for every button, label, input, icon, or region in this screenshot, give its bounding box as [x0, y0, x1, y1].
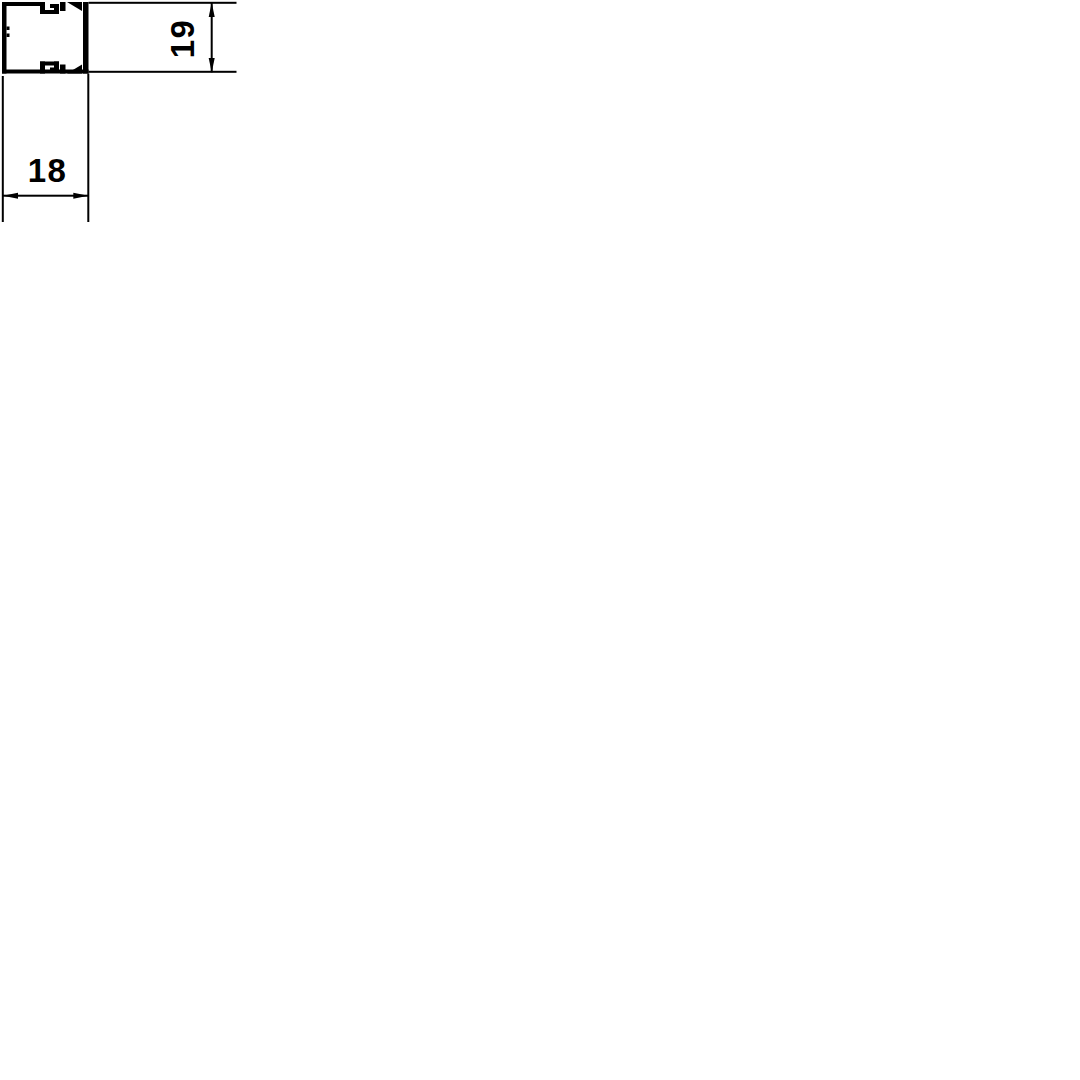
- height-extension-line-bottom: [89, 71, 237, 73]
- trunking-cover-profile: [67, 2, 89, 74]
- arrow-right-icon: [73, 193, 88, 199]
- cover-bottom-clip-wedge: [67, 65, 82, 74]
- arrow-down-icon: [209, 58, 215, 73]
- height-dimension-label: 19: [164, 19, 201, 59]
- cover-top-clip-wedge: [67, 2, 82, 11]
- cover-face: [83, 2, 89, 74]
- base-left-wall: [2, 2, 7, 74]
- arrow-left-icon: [3, 193, 18, 199]
- technical-drawing: 19 18: [0, 0, 260, 240]
- height-dimension: 19: [89, 2, 237, 73]
- width-dimension-label: 18: [28, 152, 68, 189]
- width-extension-line-right: [87, 74, 89, 223]
- drawing-ink: 19 18: [2, 2, 237, 222]
- left-wall-rib: [7, 34, 10, 38]
- trunking-cross-section-svg: 19 18: [0, 0, 260, 240]
- bottom-side-edge: [60, 65, 66, 74]
- trunking-base-profile: [2, 2, 89, 74]
- top-side-edge: [60, 2, 66, 11]
- height-extension-line-top: [89, 2, 237, 4]
- top-latch-hook: [40, 2, 59, 14]
- width-extension-line-left: [2, 76, 4, 222]
- arrow-up-icon: [209, 3, 215, 18]
- base-top-wall: [2, 2, 44, 6]
- left-wall-rib: [7, 27, 10, 31]
- page-canvas: 19 18: [0, 0, 1080, 1080]
- width-dimension: 18: [2, 74, 90, 223]
